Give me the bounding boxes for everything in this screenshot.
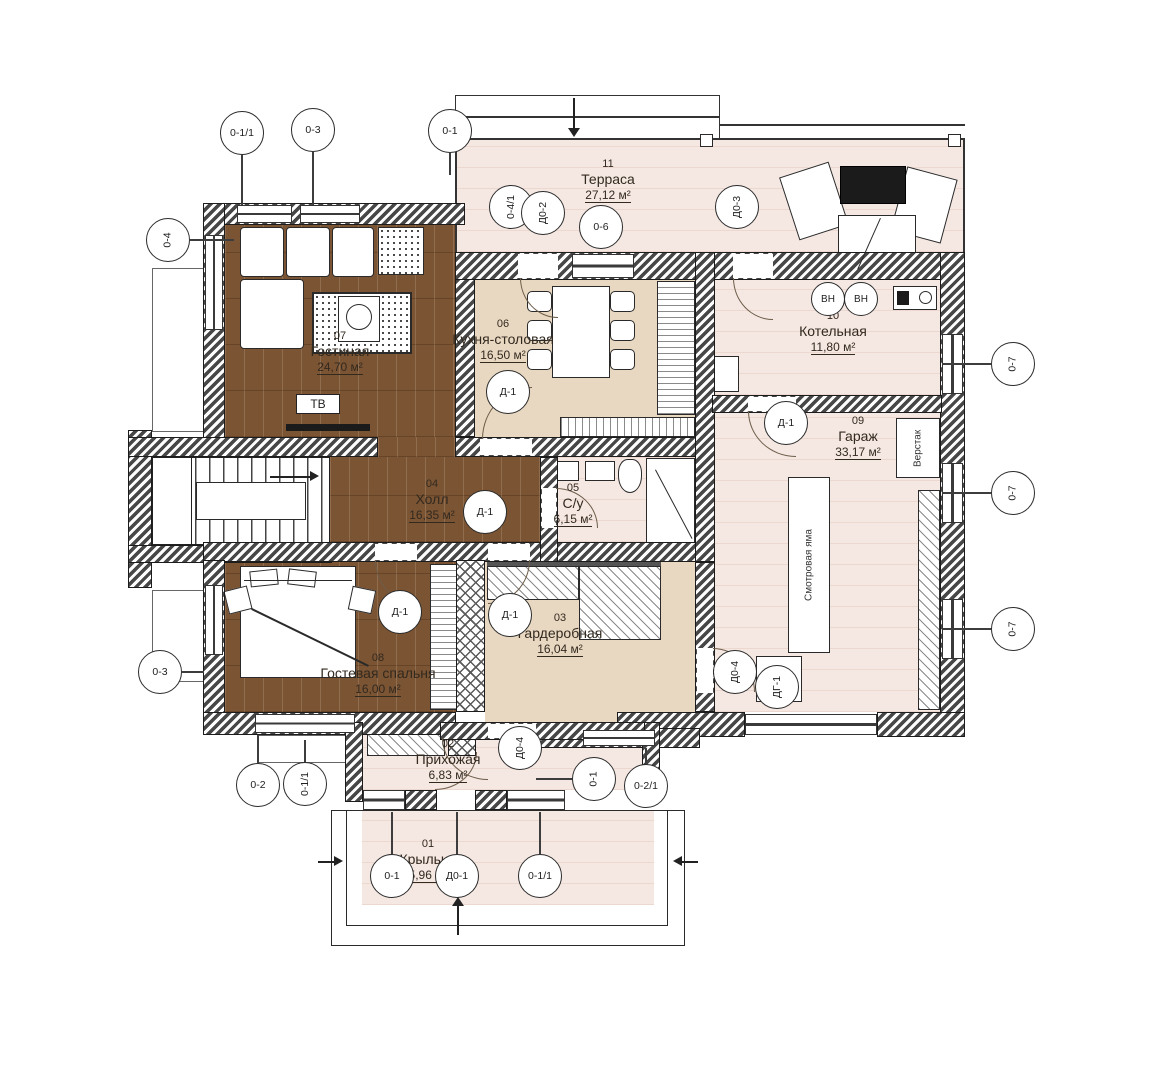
callout-0-1: 0-1 — [428, 109, 472, 153]
callout-label: Д0-1 — [446, 870, 468, 882]
callout-d0-2: Д0-2 — [521, 191, 565, 235]
sofa-seat — [286, 227, 330, 277]
pillow — [249, 569, 279, 588]
window-living-2 — [300, 205, 360, 223]
room-area-value: 33,17 м² — [835, 445, 881, 460]
room-area-value: 11,80 м² — [811, 340, 856, 355]
callout-label: ВН — [821, 294, 835, 305]
inspection-pit: Смотровая яма — [788, 477, 830, 653]
inspection-pit-label: Смотровая яма — [789, 478, 829, 652]
room-area-value: 27,12 м² — [585, 188, 631, 203]
callout-0-7: 0-7 — [991, 342, 1035, 386]
wall-stair-top — [128, 437, 378, 457]
room-number: 01 — [353, 838, 503, 851]
callout-label: 0-6 — [593, 221, 608, 233]
callout-d-1-boiler: Д-1 — [764, 401, 808, 445]
room-area-value: 24,70 м² — [317, 360, 363, 375]
callout-label: Д0-3 — [731, 196, 743, 218]
callout-d0-1: Д0-1 — [435, 854, 479, 898]
room-label-bathroom: 05 С/у 6,15 м² — [523, 482, 623, 527]
callout-label: 0-1/1 — [528, 870, 552, 882]
room-label-guest-bedroom: 08 Гостевая спальня 16,00 м² — [303, 652, 453, 697]
room-area-value: 16,50 м² — [480, 348, 526, 363]
boiler-dial — [919, 291, 932, 304]
tv-label-text: ТВ — [310, 397, 325, 411]
room-area: 24,70 м² — [265, 360, 415, 375]
callout-label: 0-2 — [250, 779, 265, 791]
room-area: 11,80 м² — [758, 340, 908, 355]
kitchen-counter-bottom — [560, 417, 695, 437]
garage-gate — [745, 714, 877, 735]
tv-stand — [286, 424, 370, 431]
room-number: 06 — [428, 318, 578, 331]
stair-rail — [196, 482, 306, 520]
window-living-left — [205, 235, 223, 330]
callout-label: 0-1 — [384, 870, 399, 882]
callout-label: 0-4/1 — [505, 195, 517, 219]
tv-label: ТВ — [296, 394, 340, 414]
room-area: 6,15 м² — [523, 512, 623, 527]
stair-landing — [152, 457, 192, 545]
wall-entrance-pier-left — [405, 790, 437, 810]
room-label-kitchen: 06 Кухня-столовая 16,50 м² — [428, 318, 578, 363]
callout-label: 0-4 — [162, 232, 174, 247]
leader-line — [182, 671, 204, 673]
callout-d-1-bedroom: Д-1 — [378, 590, 422, 634]
porch-arrow-line-up — [457, 905, 459, 935]
room-area: 33,17 м² — [783, 445, 933, 460]
callout-0-2-1: 0-2/1 — [624, 764, 668, 808]
roof-edge-line — [720, 124, 965, 126]
room-area-value: 16,00 м² — [355, 682, 401, 697]
leader-line — [942, 628, 991, 630]
bed-headboard-line — [244, 580, 352, 581]
dining-chair — [610, 349, 635, 370]
callout-0-6: 0-6 — [579, 205, 623, 249]
canopy-outline — [455, 95, 720, 140]
room-name: Гостиная — [265, 343, 415, 360]
wall-entrance-left — [345, 722, 363, 802]
porch-arrow-line-right — [682, 861, 698, 863]
callout-label: 0-2/1 — [634, 780, 658, 792]
dining-chair — [610, 291, 635, 312]
wall-boiler-garage — [712, 395, 942, 413]
callout-0-3-bedroom: 0-3 — [138, 650, 182, 694]
leader-line — [449, 153, 451, 175]
terrace-post — [700, 134, 713, 147]
wall-bedroom-wardrobe — [456, 560, 485, 712]
callout-label: Д-1 — [502, 609, 518, 621]
kitchen-counter-right — [657, 281, 695, 415]
window-wardrobe-bottom — [583, 730, 655, 746]
left-bay-living — [152, 268, 204, 432]
callout-0-7: 0-7 — [991, 607, 1035, 651]
room-label-boiler: 10 Котельная 11,80 м² — [758, 310, 908, 355]
armchair — [378, 227, 424, 275]
drain-arrow-head — [568, 128, 580, 137]
room-name: Котельная — [758, 323, 908, 340]
callout-label: ВН — [854, 294, 868, 305]
callout-label: 0-1/1 — [299, 772, 311, 796]
callout-label: 0-1/1 — [230, 127, 254, 139]
room-area: 16,04 м² — [485, 642, 635, 657]
wall-mid-horizontal — [203, 542, 703, 562]
room-number: 08 — [303, 652, 453, 665]
sofa-seat — [240, 227, 284, 277]
leader-line — [304, 740, 306, 762]
callout-0-1-entrance: 0-1 — [572, 757, 616, 801]
leader-line — [257, 735, 259, 763]
leader-line — [942, 492, 991, 494]
callout-label: Д-1 — [778, 417, 794, 429]
callout-label: 0-3 — [305, 124, 320, 136]
room-area-value: 6,15 м² — [554, 512, 593, 527]
callout-0-7: 0-7 — [991, 471, 1035, 515]
callout-label: 0-1 — [588, 771, 600, 786]
door-gap-terrace-boiler — [733, 254, 773, 278]
window-bedroom-left — [205, 585, 223, 655]
callout-label: ДГ-1 — [771, 676, 783, 698]
floor-plan: ТВ Смотровая яма Верстак — [0, 0, 1157, 1080]
drain-arrow-line — [573, 98, 575, 130]
leader-line — [241, 155, 243, 205]
leader-line — [312, 152, 314, 205]
pillow — [287, 568, 317, 587]
wall-entrance-pier-right — [475, 790, 507, 810]
callout-0-2: 0-2 — [236, 763, 280, 807]
callout-d-1-hall: Д-1 — [463, 490, 507, 534]
room-area: 16,00 м² — [303, 682, 453, 697]
window-entrance-right — [507, 790, 565, 810]
room-area: 16,50 м² — [428, 348, 578, 363]
porch-arrow-right — [673, 856, 682, 866]
callout-label: Д0-4 — [729, 661, 741, 683]
callout-label: 0-1 — [442, 125, 457, 137]
callout-label: 0-3 — [152, 666, 167, 678]
room-area-value: 16,35 м² — [409, 508, 455, 523]
leader-line — [645, 748, 647, 764]
leader-line — [942, 363, 991, 365]
room-area: 6,83 м² — [373, 768, 523, 783]
porch-arrow-line-left — [318, 861, 334, 863]
room-number: 07 — [265, 330, 415, 343]
sink — [585, 461, 615, 481]
callout-d0-4-entrance: Д0-4 — [498, 726, 542, 770]
sofa-seat — [332, 227, 374, 277]
terrace-table — [840, 166, 906, 204]
callout-dg-1: ДГ-1 — [755, 665, 799, 709]
door-gap-terrace-kitchen — [518, 254, 558, 278]
room-number: 05 — [523, 482, 623, 495]
door-gap-hall-kitchen — [480, 439, 532, 455]
callout-vn: ВН — [811, 282, 845, 316]
window-bedroom-bottom — [255, 714, 355, 733]
room-number: 11 — [533, 158, 683, 171]
porch-arrow-up — [452, 897, 464, 906]
callout-d-1-kitchen: Д-1 — [486, 370, 530, 414]
equipment-box — [713, 356, 739, 392]
callout-label: Д0-4 — [514, 737, 526, 759]
callout-label: Д-1 — [392, 606, 408, 618]
callout-0-1-1: 0-1/1 — [220, 111, 264, 155]
callout-0-1-1-bottom: 0-1/1 — [283, 762, 327, 806]
door-gap-wardrobe — [488, 544, 530, 560]
leader-line — [536, 778, 572, 780]
callout-label: 0-7 — [1007, 356, 1019, 371]
callout-label: 0-7 — [1007, 485, 1019, 500]
callout-label: Д-1 — [500, 386, 516, 398]
wall-garage-bottom-right — [877, 712, 965, 737]
room-name: С/у — [523, 495, 623, 512]
garage-shelving — [918, 490, 940, 710]
canopy-line — [455, 116, 720, 118]
callout-label: 0-7 — [1007, 621, 1019, 636]
table-decor — [346, 304, 372, 330]
callout-0-1-1-porch: 0-1/1 — [518, 854, 562, 898]
door-gap-bedroom — [375, 544, 417, 560]
room-area-value: 6,83 м² — [429, 768, 468, 783]
leader-line — [190, 239, 234, 241]
callout-label: Д-1 — [477, 506, 493, 518]
leader-line — [539, 812, 541, 854]
door-gap-main-entrance — [437, 792, 475, 808]
room-name: Гостевая спальня — [303, 665, 453, 682]
terrace-post — [948, 134, 961, 147]
callout-0-4: 0-4 — [146, 218, 190, 262]
door-gap-wardrobe-garage — [697, 648, 713, 693]
room-area-value: 16,04 м² — [537, 642, 583, 657]
stair-arrow-line — [270, 476, 310, 478]
hall-living-opening — [378, 437, 455, 457]
callout-0-1-porch: 0-1 — [370, 854, 414, 898]
callout-vn: ВН — [844, 282, 878, 316]
window-kitchen-terrace — [572, 254, 634, 278]
room-name: Кухня-столовая — [428, 331, 578, 348]
nightstand — [348, 586, 376, 614]
window-living-1 — [237, 205, 292, 223]
callout-d0-4-garage: Д0-4 — [713, 650, 757, 694]
porch-arrow-left — [334, 856, 343, 866]
boiler-unit-detail — [897, 291, 909, 305]
room-name: Терраса — [533, 171, 683, 188]
callout-d0-3: Д0-3 — [715, 185, 759, 229]
room-label-living: 07 Гостиная 24,70 м² — [265, 330, 415, 375]
window-entrance-left — [363, 790, 405, 810]
bedroom-window-ledge — [258, 735, 356, 763]
callout-label: Д0-2 — [537, 202, 549, 224]
callout-d-1-wardrobe: Д-1 — [488, 593, 532, 637]
dining-chair — [610, 320, 635, 341]
stair-arrow-head — [310, 471, 319, 481]
callout-0-3: 0-3 — [291, 108, 335, 152]
